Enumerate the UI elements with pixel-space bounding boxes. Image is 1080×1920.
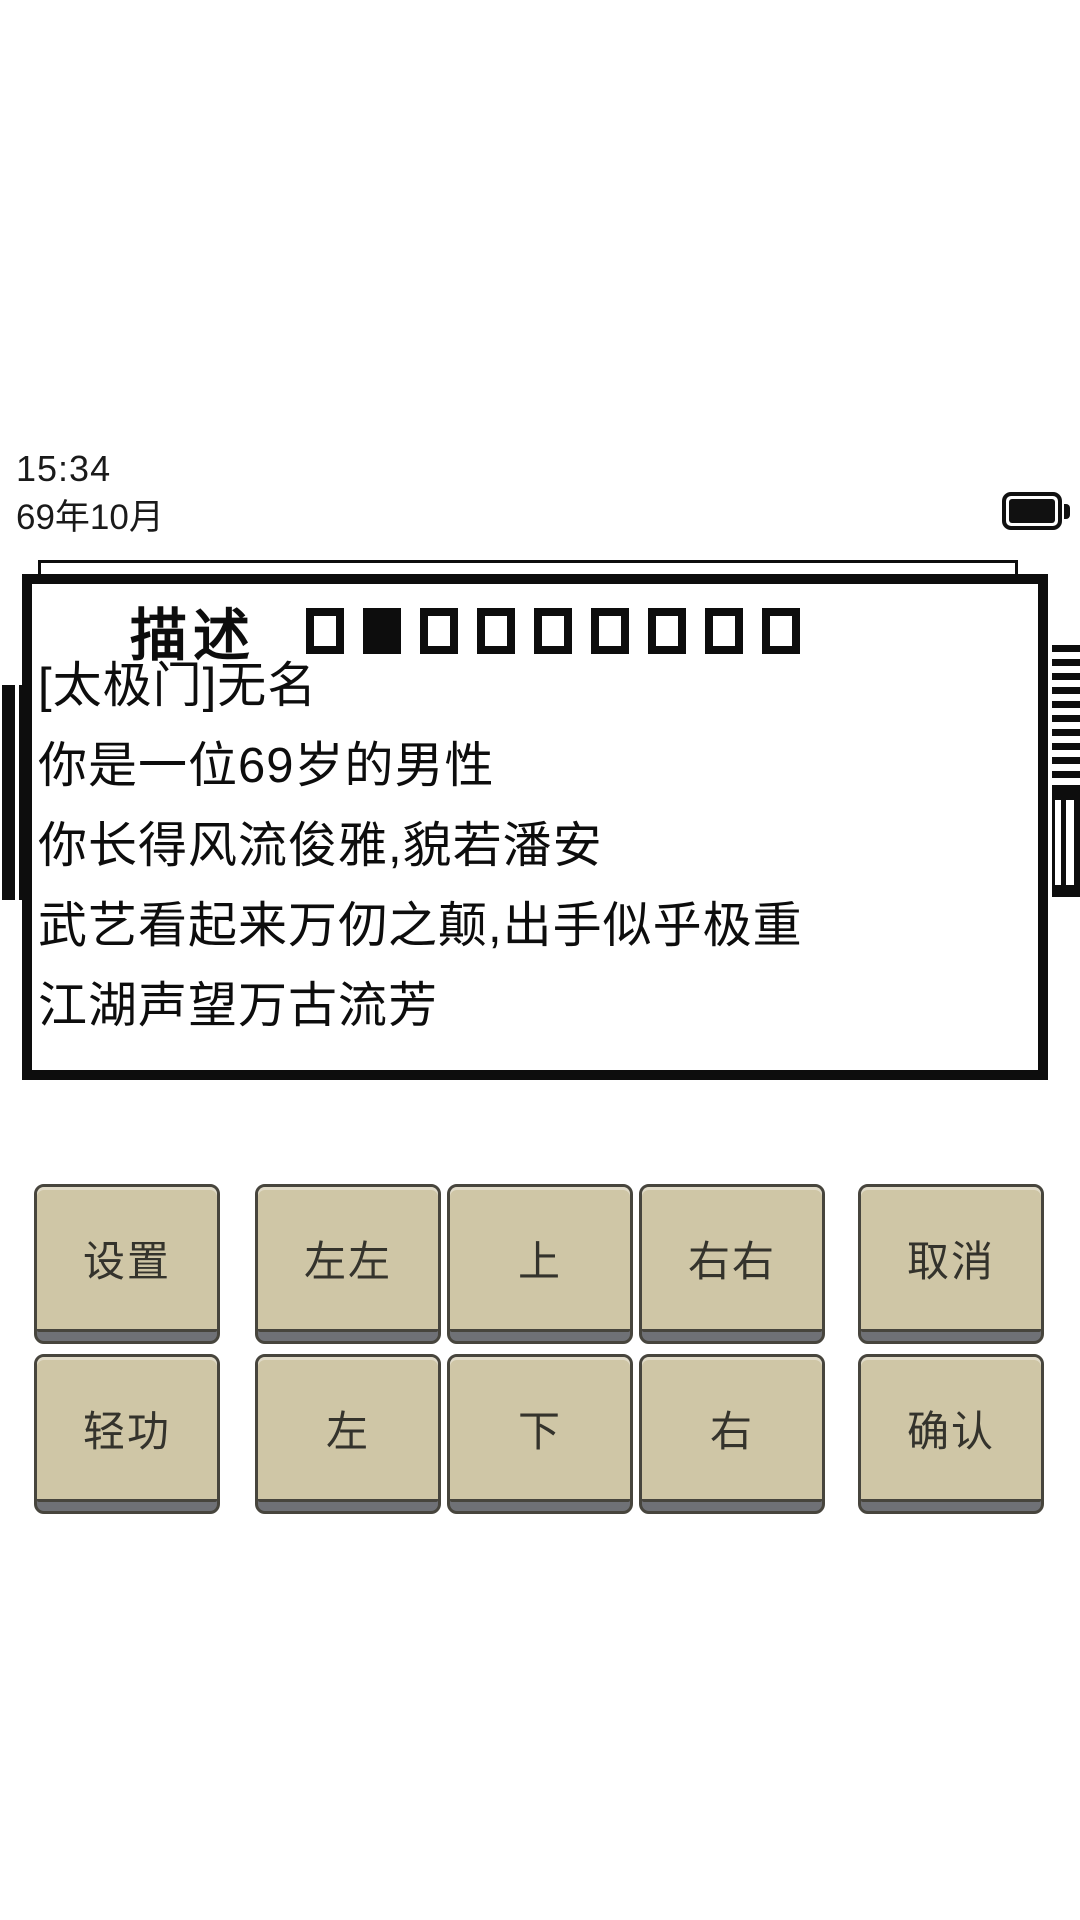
battery-nub [1064,504,1070,519]
button-face: 取消 [861,1187,1041,1332]
button-face: 右 [642,1357,822,1502]
button-face: 右右 [642,1187,822,1332]
move-right-button[interactable]: 右 [639,1354,825,1514]
lightness-skill-button[interactable]: 轻功 [34,1354,220,1514]
button-label: 轻功 [83,1398,171,1459]
game-date: 69年10月 [16,489,164,540]
stripe-list-icon [1052,645,1080,785]
right-edge-decoration [1052,645,1080,897]
button-face: 下 [450,1357,630,1502]
cancel-button[interactable]: 取消 [858,1184,1044,1344]
button-label: 左 [326,1398,370,1459]
button-face: 确认 [861,1357,1041,1502]
button-face: 左左 [258,1187,438,1332]
button-label: 右 [710,1398,754,1459]
button-label: 左左 [304,1228,392,1289]
button-row-1: 设置左左上右右取消 [0,1184,1080,1346]
button-face: 左 [258,1357,438,1502]
description-panel: 描述 [太极门]无名你是一位69岁的男性你长得风流俊雅,貌若潘安武艺看起来万仞之… [22,574,1048,1080]
description-line: 你长得风流俊雅,貌若潘安 [38,806,1028,886]
description-line: 江湖声望万古流芳 [38,966,1028,1046]
button-label: 确认 [907,1398,995,1459]
move-right-fast-button[interactable]: 右右 [639,1184,825,1344]
button-face: 上 [450,1187,630,1332]
description-line: [太极门]无名 [38,646,1028,726]
button-label: 取消 [907,1228,995,1289]
left-bar-icon [2,685,15,900]
move-up-button[interactable]: 上 [447,1184,633,1344]
grille-slot [1066,800,1074,885]
battery-icon [1002,492,1072,532]
description-text: [太极门]无名你是一位69岁的男性你长得风流俊雅,貌若潘安武艺看起来万仞之颠,出… [38,646,1028,1046]
confirm-button[interactable]: 确认 [858,1354,1044,1514]
button-label: 设置 [83,1228,171,1289]
settings-button[interactable]: 设置 [34,1184,220,1344]
button-row-2: 轻功左下右确认 [0,1354,1080,1516]
battery-body [1002,492,1062,530]
button-face: 设置 [37,1187,217,1332]
grille-slot [1055,800,1061,885]
game-screen: 15:34 69年10月 描述 [太极门]无名你是一位69岁的男性你长得风流俊雅… [0,0,1080,1920]
button-label: 右右 [688,1228,776,1289]
button-label: 下 [518,1398,562,1459]
move-left-button[interactable]: 左 [255,1354,441,1514]
move-left-fast-button[interactable]: 左左 [255,1184,441,1344]
clock-time: 15:34 [16,448,111,490]
move-down-button[interactable]: 下 [447,1354,633,1514]
button-face: 轻功 [37,1357,217,1502]
description-line: 武艺看起来万仞之颠,出手似乎极重 [38,886,1028,966]
grille-block-icon [1052,785,1080,897]
battery-fill [1009,499,1055,523]
button-label: 上 [518,1228,562,1289]
left-edge-decoration [2,685,28,900]
left-bar-icon [19,685,28,900]
description-line: 你是一位69岁的男性 [38,726,1028,806]
